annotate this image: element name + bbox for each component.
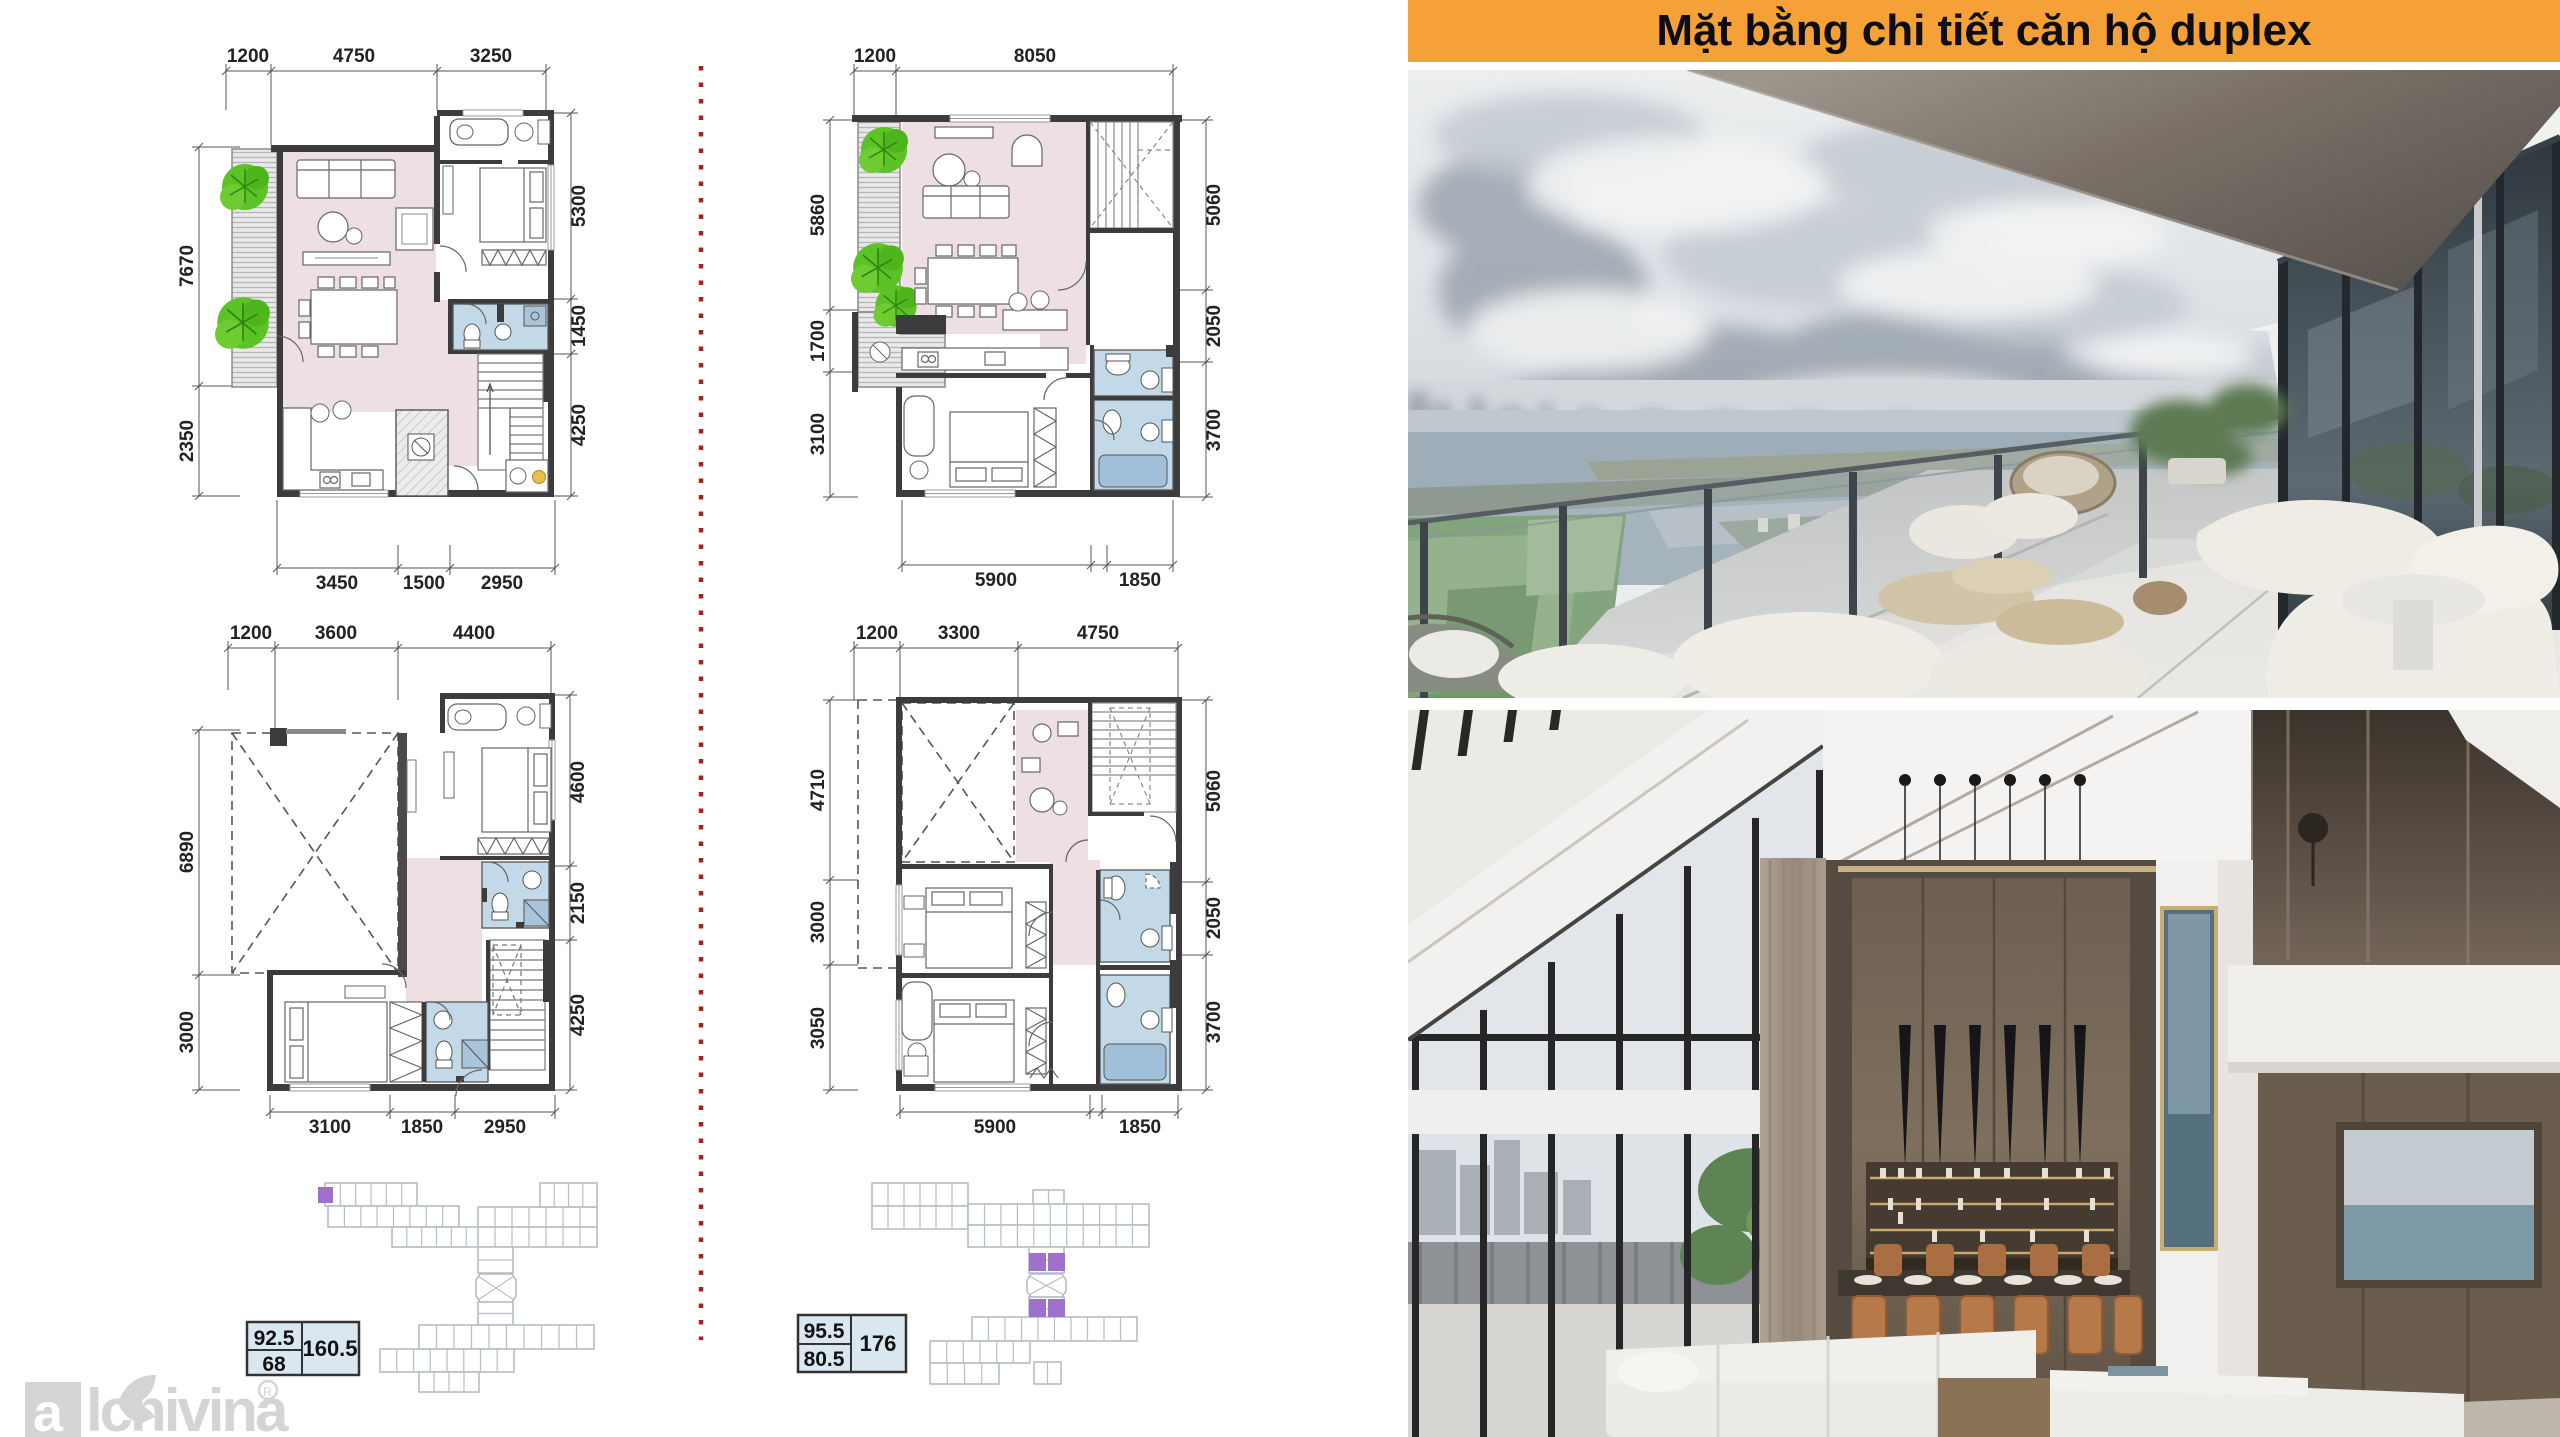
svg-text:2050: 2050 — [1204, 305, 1225, 347]
svg-text:5900: 5900 — [975, 570, 1017, 591]
svg-text:a: a — [33, 1383, 64, 1437]
svg-text:1200: 1200 — [227, 46, 269, 67]
svg-text:4750: 4750 — [333, 46, 375, 67]
svg-text:1200: 1200 — [230, 623, 272, 644]
svg-text:4250: 4250 — [569, 404, 590, 446]
svg-text:80.5: 80.5 — [804, 1348, 845, 1371]
svg-text:2150: 2150 — [568, 882, 589, 924]
svg-text:3250: 3250 — [470, 46, 512, 67]
svg-text:1700: 1700 — [808, 320, 829, 362]
svg-text:7670: 7670 — [177, 245, 198, 287]
svg-text:2350: 2350 — [177, 420, 198, 462]
svg-text:3450: 3450 — [316, 573, 358, 594]
svg-text:68: 68 — [262, 1353, 286, 1376]
svg-text:5060: 5060 — [1204, 184, 1225, 226]
svg-text:1200: 1200 — [856, 623, 898, 644]
svg-text:5860: 5860 — [808, 194, 829, 236]
svg-text:2050: 2050 — [1204, 897, 1225, 939]
svg-text:4710: 4710 — [808, 769, 829, 811]
svg-text:4750: 4750 — [1077, 623, 1119, 644]
svg-text:3100: 3100 — [309, 1117, 351, 1138]
svg-text:3700: 3700 — [1204, 409, 1225, 451]
svg-text:4250: 4250 — [568, 994, 589, 1036]
svg-text:3300: 3300 — [938, 623, 980, 644]
svg-text:3700: 3700 — [1204, 1001, 1225, 1043]
svg-text:3050: 3050 — [808, 1007, 829, 1049]
svg-text:6890: 6890 — [177, 831, 198, 873]
svg-text:1850: 1850 — [1119, 1117, 1161, 1138]
svg-text:2950: 2950 — [481, 573, 523, 594]
svg-text:3100: 3100 — [808, 413, 829, 455]
svg-text:3000: 3000 — [177, 1011, 198, 1053]
svg-text:2950: 2950 — [484, 1117, 526, 1138]
svg-text:5300: 5300 — [569, 185, 590, 227]
svg-text:4600: 4600 — [568, 761, 589, 803]
svg-text:4400: 4400 — [453, 623, 495, 644]
svg-text:8050: 8050 — [1014, 46, 1056, 67]
svg-text:5060: 5060 — [1204, 770, 1225, 812]
svg-text:1850: 1850 — [401, 1117, 443, 1138]
svg-text:3000: 3000 — [808, 901, 829, 943]
svg-text:176: 176 — [860, 1331, 897, 1356]
svg-text:1500: 1500 — [403, 573, 445, 594]
svg-text:95.5: 95.5 — [804, 1320, 845, 1343]
svg-text:R: R — [263, 1385, 272, 1399]
svg-text:3600: 3600 — [315, 623, 357, 644]
svg-text:1450: 1450 — [569, 305, 590, 347]
svg-text:160.5: 160.5 — [302, 1336, 357, 1361]
svg-text:92.5: 92.5 — [254, 1327, 295, 1350]
svg-text:5900: 5900 — [974, 1117, 1016, 1138]
svg-text:1200: 1200 — [854, 46, 896, 67]
svg-text:1850: 1850 — [1119, 570, 1161, 591]
